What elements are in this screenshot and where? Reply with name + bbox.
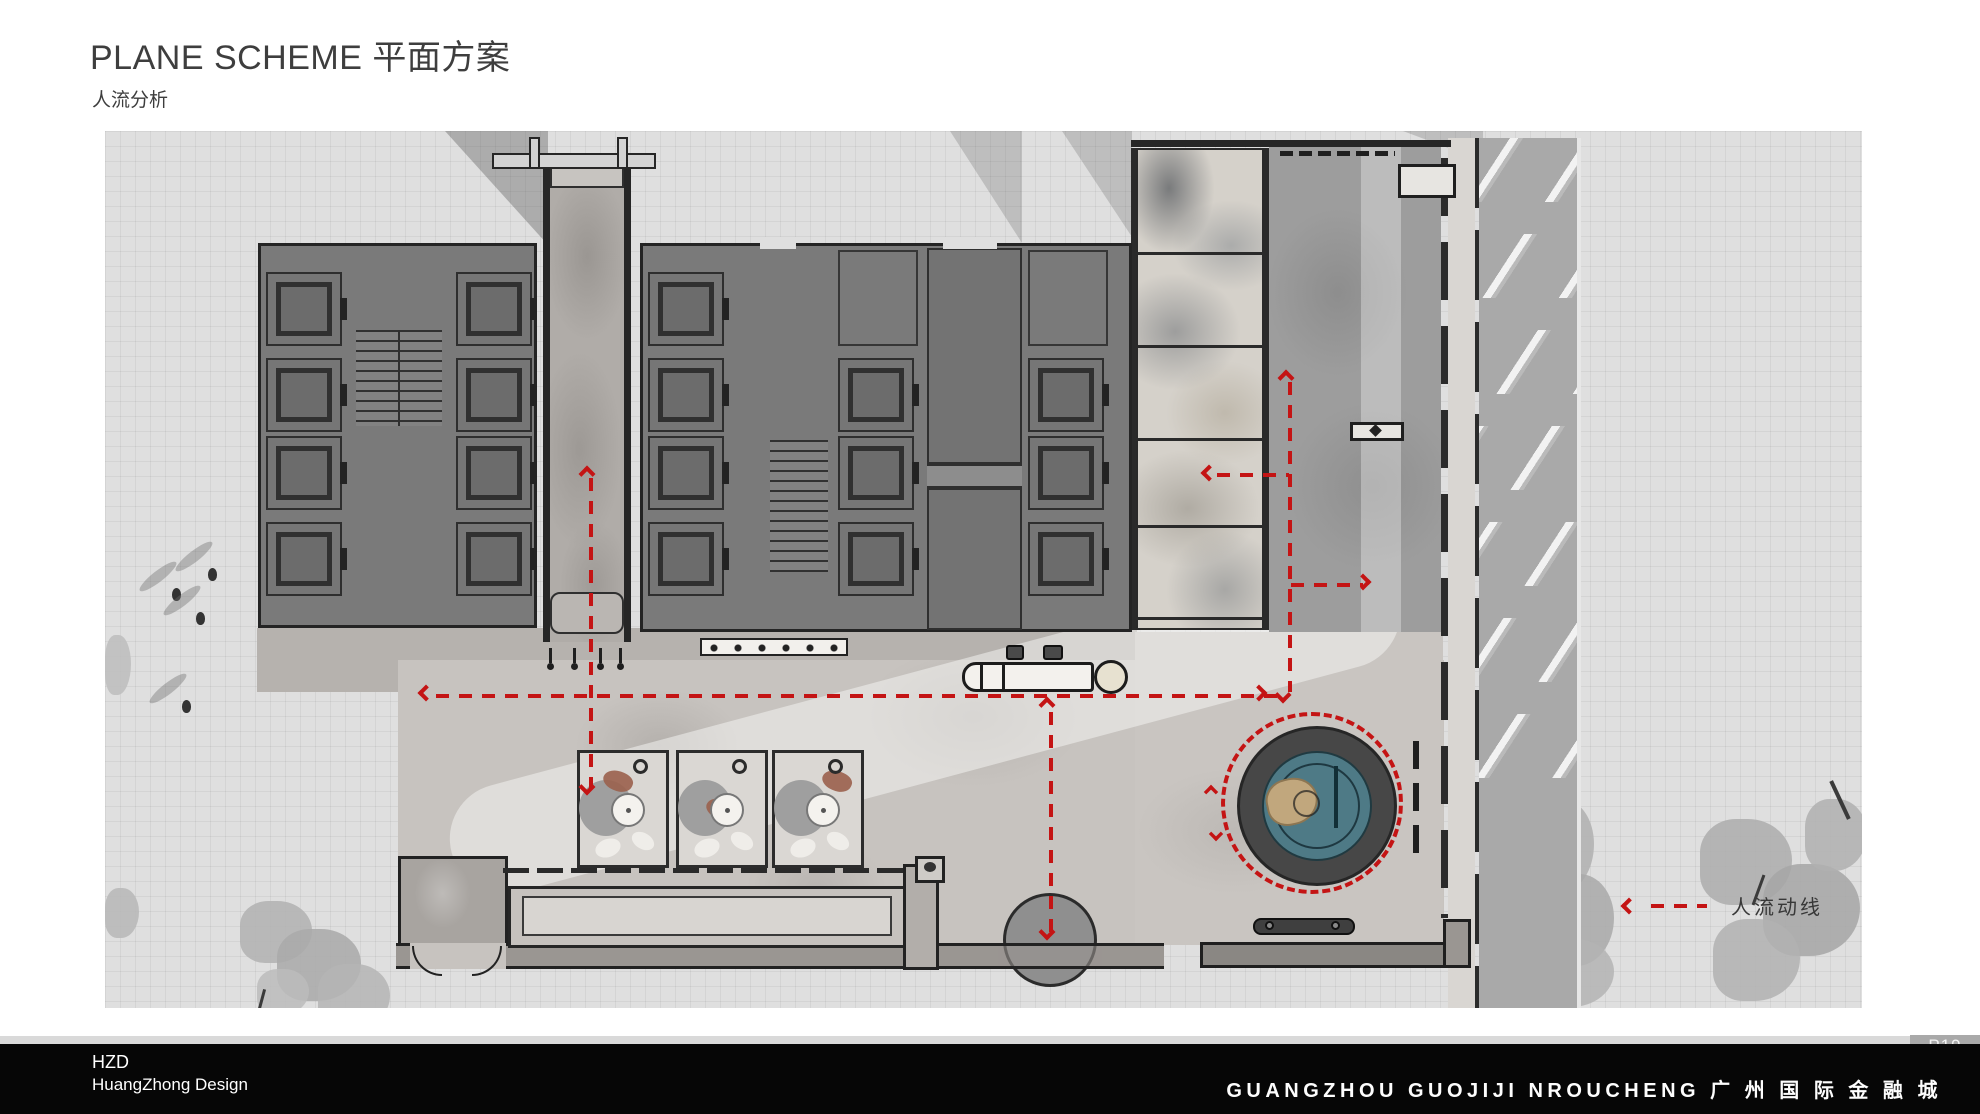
- flow-line-vertical: [589, 478, 593, 788]
- desk-end-stool: [1094, 660, 1128, 694]
- shadow-wedge: [950, 131, 1022, 243]
- entry-corridor-floor: [550, 160, 624, 642]
- slide-page: PLANE SCHEME 平面方案 人流分析 人流动线 P19 HZD Huan…: [0, 0, 1980, 1114]
- bollard: [599, 648, 602, 663]
- fixture-strip: [700, 638, 848, 656]
- marble-wall-panel: [1136, 148, 1264, 630]
- booth-stool: [633, 759, 648, 774]
- floor-plan: 人流动线: [105, 131, 1862, 1008]
- slide-header: PLANE SCHEME 平面方案 人流分析: [90, 30, 510, 112]
- hedge-line: [503, 868, 941, 873]
- side-corridor: [1448, 138, 1475, 1008]
- company-brand: HZD HuangZhong Design: [92, 1050, 248, 1097]
- booth-stool: [732, 759, 747, 774]
- south-entry-vestibule: [398, 856, 508, 948]
- door-swing-icon: [472, 946, 502, 976]
- vip-room-unit: [266, 436, 342, 510]
- bollard: [573, 648, 576, 663]
- corridor-wall: [1441, 158, 1448, 918]
- company-abbreviation: HZD: [92, 1050, 248, 1074]
- marble-joint: [1136, 617, 1264, 620]
- vip-room-unit: [456, 358, 532, 432]
- column-mark: [1413, 783, 1419, 811]
- tree-icon: [318, 964, 390, 1008]
- wall-corner: [1443, 919, 1471, 968]
- flow-arrow-icon: [1621, 897, 1638, 914]
- marble-joint: [1136, 438, 1264, 441]
- desk-divider: [980, 665, 983, 689]
- vip-room-unit: [838, 436, 914, 510]
- entry-corridor-wall: [543, 160, 550, 642]
- marble-joint: [1136, 252, 1264, 255]
- page-title: PLANE SCHEME 平面方案: [90, 30, 510, 79]
- vip-room-unit: [266, 522, 342, 596]
- inner-room: [1028, 250, 1108, 346]
- flow-legend: 人流动线: [1623, 891, 1823, 920]
- vip-room-unit: [648, 272, 724, 346]
- planter-inner: [522, 896, 892, 936]
- flow-line-vertical: [1049, 712, 1053, 934]
- flow-legend-label: 人流动线: [1731, 891, 1823, 920]
- bollard: [547, 663, 554, 670]
- footer-accent-strip: [0, 1036, 1980, 1044]
- vip-room-unit: [648, 436, 724, 510]
- pier-cap-mark: [924, 862, 936, 872]
- desk-divider: [1002, 665, 1005, 689]
- entry-corridor-wall: [624, 160, 631, 642]
- door-opening: [943, 237, 997, 249]
- vip-room-unit: [838, 358, 914, 432]
- flow-line-vertical: [1288, 382, 1292, 692]
- vip-room-unit: [838, 522, 914, 596]
- vip-room-unit: [456, 272, 532, 346]
- bench-bolt: [1265, 921, 1274, 930]
- vip-room-unit: [648, 522, 724, 596]
- stair-stripes: [1479, 138, 1577, 778]
- curtain-squiggle: [1280, 151, 1395, 156]
- north-wall: [1131, 140, 1451, 147]
- entry-threshold: [550, 166, 624, 188]
- vip-room-unit: [648, 358, 724, 432]
- tree-icon: [1805, 799, 1862, 871]
- tree-icon: [105, 635, 131, 695]
- booth-table-mark: [725, 808, 730, 813]
- bollard: [597, 663, 604, 670]
- stair-core: [770, 440, 828, 572]
- booth-stool: [828, 759, 843, 774]
- column-mark: [1413, 741, 1419, 769]
- flow-line-branch: [1217, 473, 1289, 477]
- bollard: [617, 663, 624, 670]
- pods-floor: [1269, 147, 1441, 632]
- column-mark: [1413, 825, 1419, 853]
- inner-bridge: [927, 464, 1022, 488]
- booth-table-mark: [626, 808, 631, 813]
- console-table: [1398, 164, 1456, 198]
- entry-canopy: [492, 153, 656, 169]
- vip-room-unit: [1028, 358, 1104, 432]
- zone-edge: [1577, 138, 1581, 1008]
- vip-room-unit: [1028, 522, 1104, 596]
- flow-line-main: [436, 694, 1280, 698]
- desk-stool: [1043, 645, 1063, 660]
- bollard: [549, 648, 552, 663]
- inner-room: [927, 488, 1022, 630]
- flow-circle: [1221, 712, 1403, 894]
- vip-room-unit: [456, 436, 532, 510]
- tree-icon: [1713, 919, 1800, 1001]
- shadow-wedge: [1062, 131, 1132, 237]
- marble-joint: [1136, 345, 1264, 348]
- person-figure: [196, 612, 205, 625]
- project-title: GUANGZHOU GUOJIJI NROUCHENG 广 州 国 际 金 融 …: [1226, 1074, 1942, 1103]
- person-figure: [208, 568, 217, 581]
- inner-room: [927, 248, 1022, 464]
- flow-dash-line: [1651, 904, 1707, 908]
- inner-room: [838, 250, 918, 346]
- wall-line: [1264, 148, 1269, 630]
- bench-bolt: [1331, 921, 1340, 930]
- vip-room-unit: [266, 358, 342, 432]
- marble-joint: [1136, 525, 1264, 528]
- tree-icon: [105, 888, 139, 938]
- bollard: [619, 648, 622, 663]
- bollard: [571, 663, 578, 670]
- footer-bar: HZD HuangZhong Design GUANGZHOU GUOJIJI …: [0, 1044, 1980, 1114]
- canopy-post: [529, 137, 540, 169]
- flow-line-branch: [1291, 583, 1363, 587]
- stair-divider: [398, 330, 400, 426]
- door-swing-icon: [412, 946, 442, 976]
- vip-room-unit: [456, 522, 532, 596]
- vip-room-unit: [266, 272, 342, 346]
- vip-room-unit: [1028, 436, 1104, 510]
- entry-end-mat: [550, 592, 624, 634]
- pods-light-band: [1361, 147, 1401, 632]
- south-wall: [1200, 942, 1470, 968]
- booth-table-mark: [821, 808, 826, 813]
- company-name: HuangZhong Design: [92, 1074, 248, 1097]
- page-subtitle: 人流分析: [92, 85, 510, 112]
- person-figure: [182, 700, 191, 713]
- door-opening: [760, 237, 796, 249]
- south-wall-overlay: [998, 943, 1102, 969]
- canopy-post: [617, 137, 628, 169]
- desk-stool: [1006, 645, 1024, 660]
